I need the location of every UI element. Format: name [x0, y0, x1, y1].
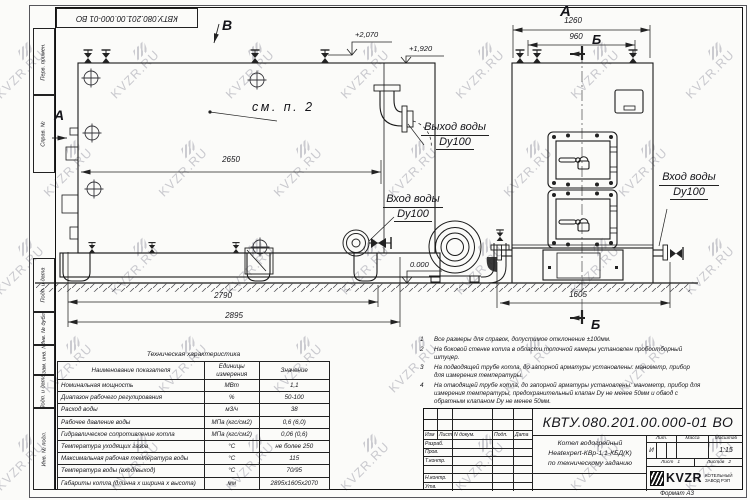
kvzr-logo-text: KVZR: [666, 471, 702, 485]
stamp-right-section: Лит. Масса Масштаб И 1:15 Лист 1 Листов …: [646, 435, 744, 491]
level-mark-zero: 0.000: [410, 260, 429, 269]
field-inv-dubl: Инв. № дубл.: [33, 312, 55, 345]
kvzr-logo-icon: [650, 471, 664, 486]
format-label: Формат А3: [612, 490, 742, 497]
note-item: 2На боковой стенке котла в области топоч…: [417, 346, 701, 362]
section-b-bottom-label: Б: [591, 317, 600, 332]
title-block-doc-number: КВТУ.080.201.00.000-01 ВО: [532, 409, 743, 436]
product-title-line3: по техническому заданию: [548, 459, 632, 469]
field-sprav-no: Справ. №: [33, 95, 55, 173]
inlet-label-right: Вход воды Dy100: [648, 171, 730, 200]
dim-2650: 2650: [196, 155, 266, 164]
spec-table: Наименование показателя Единицы измерени…: [57, 361, 330, 490]
title-block: КВТУ.080.201.00.000-01 ВО Изм Лист N док…: [423, 408, 743, 490]
spec-header-value: Значение: [260, 362, 329, 379]
dim-1605: 1605: [548, 290, 608, 299]
spec-row: Диапазон рабочего регулирования%50-100: [58, 391, 329, 403]
spec-row: Рабочее давление водыМПа (кгс/см2)0,6 (6…: [58, 416, 329, 428]
sheet-number: 1: [677, 460, 680, 465]
doc-number-rotated-box: КВТУ.080.201.00.000-01 ВО: [56, 8, 198, 28]
field-vzam-inv: Взам. инв. №: [33, 345, 55, 375]
note-item: 3На подводящей трубе котла, до запорной …: [417, 364, 701, 380]
spec-row: Гидравлическое сопротивление котлаМПа (к…: [58, 428, 329, 440]
note-item: 4На отводящей трубе котла, до запорной а…: [417, 382, 701, 406]
field-perv-primen: Перв. примен.: [33, 28, 55, 95]
view-a-front-label: А: [560, 3, 571, 20]
dim-2895: 2895: [198, 311, 270, 320]
scale-value: 1:15: [709, 443, 743, 459]
spec-row: Номинальная мощностьМВт1,1: [58, 379, 329, 391]
dim-2790: 2790: [188, 291, 258, 300]
view-b-label: В: [222, 17, 232, 33]
field-podp-data-1: Подп. и дата: [33, 258, 55, 312]
field-inv-podl: Инв. № подл.: [33, 408, 55, 490]
spec-header-row: Наименование показателя Единицы измерени…: [58, 362, 329, 379]
view-a-side-label: А: [54, 107, 64, 123]
spec-row: Расход водым3/ч38: [58, 403, 329, 415]
spec-table-title: Техническая характеристика: [57, 351, 330, 358]
inlet-label-left: Вход воды Dy100: [372, 193, 454, 222]
spec-row: Температура воды (вход/выход)°С70/95: [58, 464, 329, 476]
empty-cell: [532, 473, 647, 491]
product-title-line2: Heatexpert-КВр-1,1-КБД(К): [548, 449, 631, 459]
sheets-total: 2: [728, 460, 731, 465]
spec-row: Максимальная рабочая температура воды°С1…: [58, 452, 329, 464]
spec-row: Температура уходящих газов°Сне более 250: [58, 440, 329, 452]
dim-1260: 1260: [547, 16, 599, 25]
spec-header-units: Единицы измерения: [205, 362, 260, 379]
outlet-label: Выход воды Dy100: [409, 121, 501, 150]
level-mark-1920: +1,920: [409, 44, 432, 53]
note-item: 1Все размеры для справок, допустимое отк…: [417, 336, 701, 344]
section-b-top-label: Б: [592, 32, 601, 47]
product-title-cell: Котел водогрейный Heatexpert-КВр-1,1-КБД…: [532, 435, 647, 474]
revision-grid: Изм Лист N докум. Подп. Дата Разраб. Про…: [424, 409, 532, 491]
field-podp-data-2: Подп. и дата: [33, 375, 55, 408]
level-mark-2070: +2,070: [355, 30, 378, 39]
see-note-label: см. п. 2: [252, 100, 315, 114]
product-title-line1: Котел водогрейный: [558, 439, 623, 449]
spec-row: Габариты котла (длинна х ширина х высота…: [58, 477, 329, 489]
drawing-sheet: { "doc_number": "КВТУ.080.201.00.000-01 …: [0, 0, 750, 500]
notes-list: 1Все размеры для справок, допустимое отк…: [417, 336, 701, 408]
litera-value: И: [647, 443, 657, 459]
doc-number-rotated: КВТУ.080.201.00.000-01 ВО: [76, 14, 178, 23]
factory-logo: KVZR КОТЕЛЬНЫЙ ЗАВОД РЭП: [647, 467, 744, 489]
spec-header-name: Наименование показателя: [58, 362, 205, 379]
